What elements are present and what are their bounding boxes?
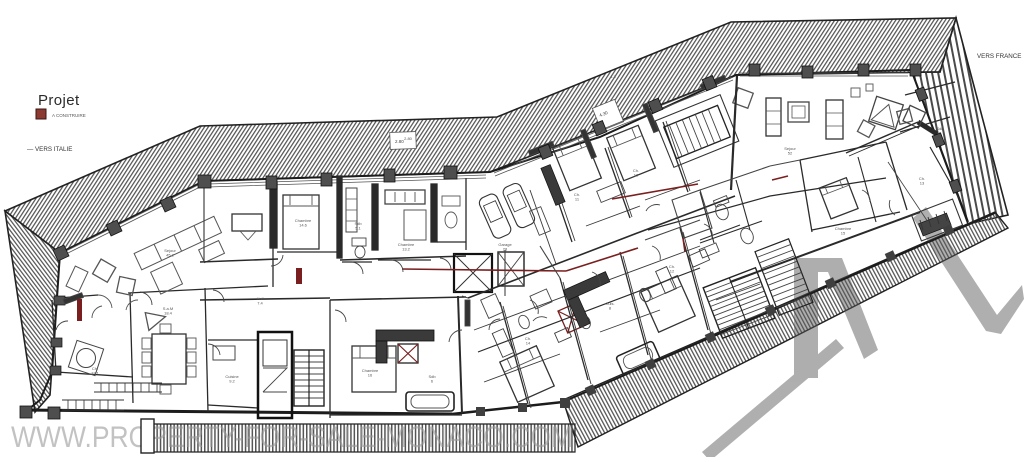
svg-text:VERS FRANCE: VERS FRANCE xyxy=(977,53,1021,60)
svg-text:52: 52 xyxy=(788,151,793,156)
svg-text:12.1: 12.1 xyxy=(91,371,100,376)
svg-text:13: 13 xyxy=(920,181,925,186)
svg-text:4.3: 4.3 xyxy=(610,74,616,79)
svg-text:14.6: 14.6 xyxy=(299,223,308,228)
svg-text:A CONSTRUIRE: A CONSTRUIRE xyxy=(52,113,86,118)
svg-text:5.1: 5.1 xyxy=(355,226,361,231)
svg-text:16: 16 xyxy=(368,373,373,378)
svg-text:WWW.PROPERTY-FOR-SALE-MONACO.C: WWW.PROPERTY-FOR-SALE-MONACO.COM xyxy=(11,421,573,454)
svg-text:15: 15 xyxy=(841,231,846,236)
svg-text:7.4: 7.4 xyxy=(257,301,263,306)
svg-text:13.2: 13.2 xyxy=(402,247,411,252)
svg-text:— VERS ITALIE: — VERS ITALIE xyxy=(27,146,72,153)
svg-text:Projet: Projet xyxy=(38,92,80,109)
svg-text:14: 14 xyxy=(526,341,531,346)
svg-text:28: 28 xyxy=(503,247,508,252)
svg-text:18.4: 18.4 xyxy=(164,311,173,316)
svg-text:2.80: 2.80 xyxy=(395,139,404,144)
svg-text:12: 12 xyxy=(634,173,639,178)
svg-text:12: 12 xyxy=(670,269,675,274)
svg-text:2.80: 2.80 xyxy=(404,136,413,141)
svg-text:45.2: 45.2 xyxy=(166,253,175,258)
svg-text:9.2: 9.2 xyxy=(229,379,235,384)
